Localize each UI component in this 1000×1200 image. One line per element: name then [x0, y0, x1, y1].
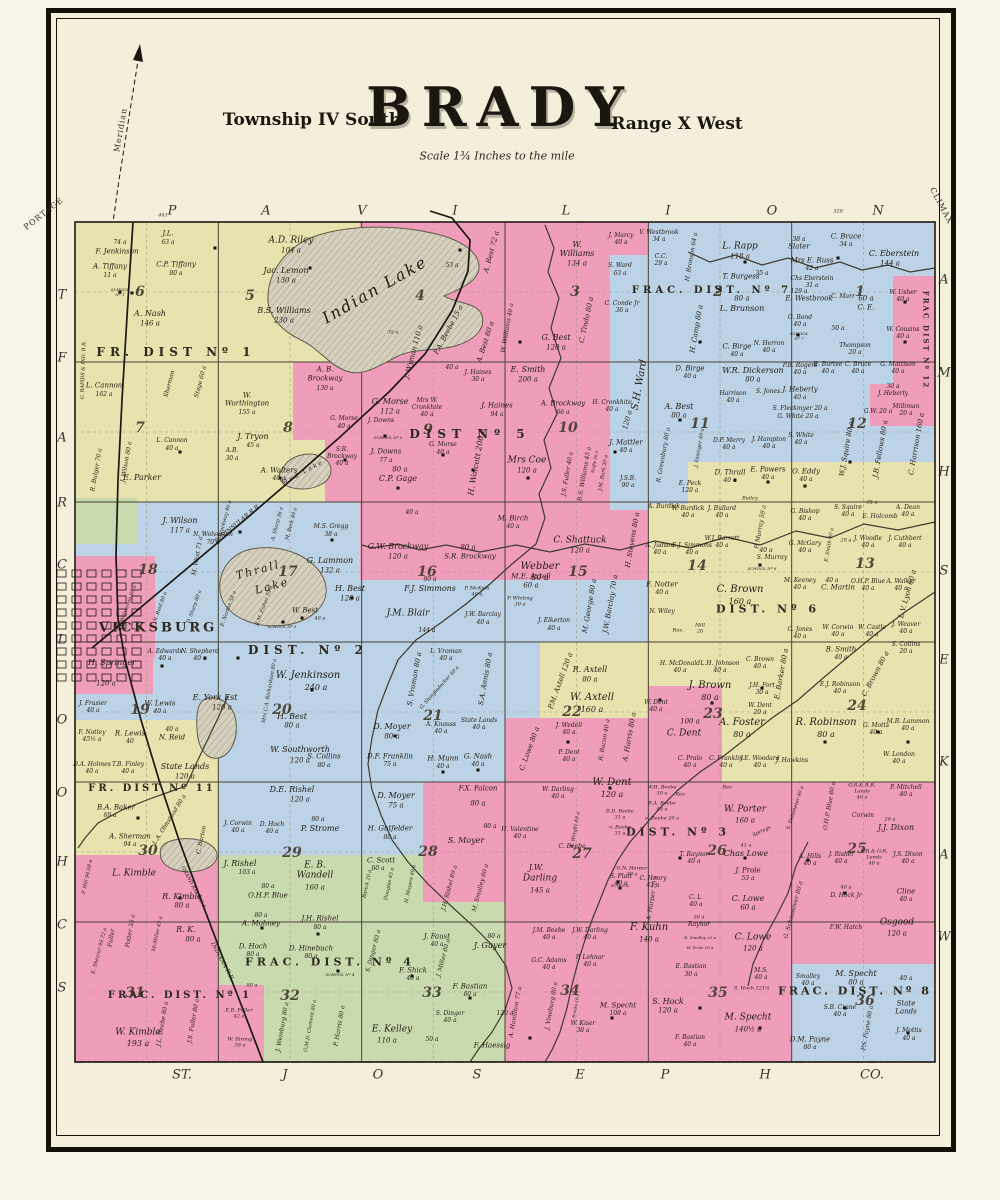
parcel-label: D. Hinebuch — [289, 946, 333, 953]
parcel-label: 38 a — [792, 237, 805, 243]
parcel-label: J. Mottis — [896, 1028, 921, 1034]
parcel-label: 40 a — [899, 897, 912, 903]
parcel-label: N. Reid — [159, 735, 185, 742]
parcel-label: 120 a — [212, 705, 232, 712]
parcel-label: P. Harris 80 a — [333, 1005, 346, 1047]
parcel-label: W. Axtell — [570, 693, 614, 703]
parcel-label: 40 a — [86, 708, 99, 714]
parcel-label: W. Best — [292, 608, 318, 615]
parcel-label: 80 a — [174, 903, 189, 910]
section-number: 23 — [703, 707, 722, 721]
parcel-label: 80 a — [392, 467, 407, 474]
parcel-label: 112 a — [380, 409, 400, 416]
parcel-label: E. Smith 40 a — [825, 528, 836, 563]
parcel-label: R. Axtell — [573, 666, 607, 674]
parcel-label: 53 a — [445, 263, 458, 269]
parcel-label: A. Foster — [719, 718, 765, 728]
parcel-label: 66 a — [556, 410, 569, 416]
parcel-label: 117 a — [170, 528, 190, 535]
parcel-label: 60 a — [371, 866, 384, 872]
parcel-label: J.W. Barclay — [465, 612, 501, 618]
parcel-label: E. Westbrook — [785, 296, 832, 303]
parcel-label: 40 a — [899, 629, 912, 635]
parcel-label: F. Bastian — [453, 984, 488, 991]
parcel-label: 40 a — [761, 475, 774, 481]
parcel-label: D.F. Franklin — [367, 754, 413, 761]
parcel-label: P. Strome — [301, 825, 340, 833]
parcel-label: 40 a — [753, 763, 766, 769]
parcel-label: Webber — [521, 562, 560, 572]
parcel-label: 69 a — [103, 813, 116, 819]
parcel-label: 60 a — [463, 992, 476, 998]
parcel-label: 40 a — [821, 369, 834, 375]
parcel-label: 77 a — [379, 458, 392, 464]
parcel-label: G.W. Brockway — [368, 543, 429, 551]
parcel-label: 40 a — [753, 664, 766, 670]
parcel-label: 80 a — [745, 377, 760, 384]
parcel-label: 40 a — [614, 240, 627, 246]
section-number: 16 — [417, 565, 436, 579]
parcel-label: Douglas 45 a — [384, 867, 396, 900]
parcel-label: 130 a — [276, 278, 296, 285]
parcel-label: C. Eberstein — [869, 250, 919, 258]
parcel-label: INDIANA R.R. — [209, 941, 235, 982]
parcel-label: 42 a — [234, 1015, 245, 1020]
parcel-label: N. Reid 80 a — [153, 591, 168, 622]
parcel-label: 160 a — [305, 885, 325, 892]
section-number: 35 — [708, 986, 727, 1000]
parcel-label: J. Weinburg 80 a — [276, 1002, 291, 1052]
parcel-label: G. White 20 a — [777, 414, 818, 420]
parcel-label: R. Greenbury 80 a — [656, 427, 672, 483]
parcel-label: 120 a — [340, 596, 360, 603]
edge-letter-south: S — [473, 1069, 482, 1082]
section-number: 15 — [568, 565, 587, 579]
lake-name: Indian Lake — [320, 254, 430, 327]
parcel-label: L. Brunson — [720, 305, 764, 313]
parcel-label: 144 a — [419, 628, 436, 634]
parcel-label: 40 a — [723, 478, 736, 484]
district-label: FR. DIST Nº 11 — [88, 784, 215, 794]
parcel-label: A. Sharp 36 a — [271, 507, 285, 542]
parcel-label: C. Martin — [821, 585, 855, 592]
parcel-label: 40 a — [896, 334, 909, 340]
parcel-label: F. Jenkinson — [96, 249, 139, 256]
parcel-label: 40 a — [869, 730, 882, 736]
parcel-label: A. Nash — [134, 310, 166, 318]
parcel-label: 103 a — [239, 870, 256, 876]
parcel-label: L.V. Lyon 60 a — [898, 569, 918, 619]
parcel-label: 50 a — [831, 326, 844, 332]
parcel-label: J.L. — [162, 231, 173, 238]
parcel-label: H. Gutfelder — [368, 826, 412, 833]
parcel-label: Nº 7 — [794, 337, 803, 341]
parcel-label: J. Brown — [689, 681, 732, 691]
parcel-label: 80 a — [313, 925, 326, 931]
parcel-label: J. Prole — [735, 868, 760, 875]
parcel-label: 30 a — [225, 456, 238, 462]
parcel-label: 40 a — [803, 861, 816, 867]
parcel-label: State Lands — [161, 763, 209, 771]
section-number: 22 — [562, 705, 581, 719]
parcel-label: o. Beebe 20 a — [645, 817, 679, 822]
parcel-label: 40 a — [722, 445, 735, 451]
parcel-label: 140 a — [639, 937, 659, 944]
parcel-label: 40 a — [506, 524, 519, 530]
title-range: Range X West — [611, 114, 743, 134]
parcel-label: 80 a — [470, 801, 485, 808]
parcel-label: D. Hock Jr — [830, 893, 861, 899]
parcel-label: 40 a — [683, 374, 696, 380]
parcel-label: C. Scott — [367, 858, 395, 865]
plat-map-page: { "title":{"name":"BRADY","township":"To… — [0, 0, 1000, 1200]
section-number: 17 — [278, 565, 297, 579]
parcel-label: J. Tryon — [237, 433, 268, 441]
parcel-label: S. Vroman 80 a — [407, 652, 423, 707]
section-number: 7 — [135, 421, 145, 435]
parcel-label: B.S. Williams 45 a — [577, 446, 592, 501]
edge-letter-south: ST. — [172, 1069, 192, 1082]
parcel-label: Bailey — [742, 497, 758, 502]
parcel-label: W. — [572, 241, 581, 249]
edge-letter-west: T — [58, 289, 67, 302]
edge-letter-east: H — [938, 466, 949, 479]
edge-letter-north: I — [665, 205, 670, 218]
district-label: DIST. Nº 6 — [716, 604, 820, 615]
parcel-label: M. Smalley 80 a — [472, 863, 491, 912]
parcel-label: J.W. Barclay 70 a — [602, 574, 619, 634]
parcel-label: L. Cannon — [156, 438, 187, 444]
parcel-label: J. Guyer — [474, 942, 506, 950]
parcel-label: C. Bruce — [831, 234, 862, 241]
page-title: BRADY — [366, 75, 634, 139]
parcel-label: 40 a — [898, 543, 911, 549]
section-number: 3 — [570, 285, 580, 299]
parcel-label: 42 a — [805, 266, 818, 272]
parcel-label: W. Kimble — [115, 1029, 161, 1038]
parcel-label: 40 a — [841, 886, 852, 891]
parcel-label: F. Haessig — [474, 1043, 511, 1050]
parcel-label: 40 a — [834, 859, 847, 865]
parcel-label: Chas Lowe — [724, 850, 768, 858]
parcel-label: 120 a — [96, 681, 116, 688]
parcel-label: 34 a — [839, 242, 852, 248]
parcel-label: 441 — [158, 214, 168, 219]
district-label: FRAC DIST Nº 12 — [923, 291, 930, 389]
parcel-label: M. Specht — [725, 1014, 772, 1023]
parcel-label: Res — [722, 786, 731, 791]
parcel-label: 80 a — [487, 934, 500, 940]
parcel-label: 40 a — [471, 762, 484, 768]
parcel-label: 48 a — [315, 617, 326, 622]
parcel-label: A. Best 72 a — [483, 230, 501, 273]
parcel-label: H. Camp 80 a — [689, 304, 704, 353]
parcel-label: F.W. Hatch — [830, 925, 863, 931]
parcel-label: 40 a — [833, 689, 846, 695]
parcel-label: S. Hock — [652, 998, 683, 1006]
section-number: 32 — [280, 989, 299, 1003]
parcel-label: 108 a — [610, 1011, 627, 1017]
parcel-label: 80 a — [817, 731, 835, 739]
parcel-label: C. Lowe — [735, 934, 772, 943]
parcel-label: 41 a — [741, 844, 752, 849]
parcel-label: E. Barker 80 a — [774, 648, 790, 700]
parcel-label: H. Munn — [427, 756, 458, 763]
parcel-label: 120 a — [546, 345, 566, 352]
edge-letter-west: A — [57, 432, 66, 445]
parcel-label: 40 a — [153, 709, 166, 715]
parcel-label: 36 a — [615, 308, 628, 314]
parcel-label: C. Brown — [717, 585, 764, 595]
parcel-label: SCHOOL Nº 4 — [326, 973, 355, 977]
parcel-label: B.S. Williams — [257, 307, 310, 315]
parcel-label: N. Wiley — [649, 609, 675, 615]
parcel-label: 40 a — [562, 757, 575, 763]
parcel-label: L.A. Olmstead 80 a — [152, 794, 188, 846]
parcel-label: 80 a — [317, 763, 330, 769]
parcel-label: 40 a — [265, 829, 278, 835]
parcel-label: 38 a — [324, 532, 337, 538]
parcel-label: J. Mattler — [609, 440, 642, 447]
parcel-label: 40 a — [894, 586, 907, 592]
parcel-label: F. Shick — [399, 968, 427, 975]
parcel-label: Jac. Lemon — [263, 267, 308, 275]
parcel-label: McMiller 45 a — [152, 916, 164, 952]
parcel-label: 11 a — [103, 273, 116, 279]
parcel-label: S. Murray — [757, 555, 787, 561]
parcel-label: 40 a — [655, 590, 668, 596]
parcel-label: Sherman — [164, 370, 177, 398]
parcel-label: E. Smith — [511, 366, 546, 374]
parcel-label: 118 a — [730, 254, 750, 261]
parcel-label: 40 a — [861, 586, 874, 592]
parcel-label: 120 a — [601, 791, 624, 799]
edge-letter-east: A — [939, 849, 948, 862]
parcel-label: 40 a — [833, 1012, 846, 1018]
edge-letter-west: L — [58, 634, 67, 647]
parcel-label: 40 a — [542, 965, 555, 971]
parcel-label: H. Springer — [88, 659, 136, 667]
parcel-label: 134 a — [567, 261, 587, 268]
parcel-label: 40 a — [547, 626, 560, 632]
parcel-label: Stage 60 a — [194, 366, 208, 399]
parcel-label: 40 a — [583, 935, 596, 941]
parcel-label: D. Hoch — [239, 944, 268, 951]
parcel-label: J.W. — [529, 864, 544, 872]
section-number: 13 — [855, 557, 874, 571]
parcel-label: 80 a — [284, 723, 299, 730]
edge-letter-east: E — [939, 654, 949, 667]
parcel-label: 155 a — [239, 410, 256, 416]
parcel-label: 40 a — [899, 976, 912, 982]
parcel-label: M. Specht — [600, 1003, 636, 1010]
edge-letter-south: P — [661, 1069, 670, 1082]
parcel-label: R. Lewis — [115, 731, 145, 738]
parcel-label: F. Kuhn — [630, 923, 668, 933]
parcel-label: 240 a — [305, 684, 328, 692]
parcel-label: 40 a — [158, 656, 171, 662]
parcel-label: E. B. — [304, 862, 326, 871]
parcel-label: 120 a — [570, 548, 590, 555]
parcel-label: J. Rishel — [224, 860, 257, 868]
district-label: DIST. Nº 2 — [248, 644, 368, 656]
parcel-label: 40 a — [799, 477, 812, 483]
parcel-label: M. Beck 40 a — [285, 507, 298, 540]
district-label: DIST Nº 5 — [409, 428, 530, 440]
parcel-label: 200 a — [518, 377, 538, 384]
edge-letter-east: S — [940, 565, 949, 578]
parcel-label: J. Hawkins — [776, 758, 808, 764]
parcel-label: A. Best — [665, 403, 694, 411]
parcel-label: 40 a — [513, 834, 526, 840]
parcel-label: Res. — [673, 629, 684, 634]
parcel-label: J. Vineburg 80 a — [545, 981, 559, 1030]
parcel-label: W. — [243, 393, 251, 400]
parcel-label: A. B. — [317, 367, 334, 374]
parcel-label: 40 a — [869, 862, 880, 867]
parcel-label: 40 a — [472, 725, 485, 731]
parcel-label: D. Birge — [675, 366, 704, 373]
parcel-label: 80 a — [311, 817, 324, 823]
parcel-label: 35 a — [867, 501, 878, 506]
parcel-label: O. Eddy — [792, 469, 820, 476]
parcel-label: G. Nash — [464, 754, 492, 761]
parcel-label: 80 a — [671, 413, 686, 420]
parcel-label: E. Bastian — [675, 964, 706, 970]
parcel-label: 130 a — [317, 386, 334, 392]
parcel-label: 40 a — [825, 578, 838, 584]
parcel-label: J. Downs — [368, 418, 394, 424]
parcel-label: 129 a — [791, 289, 808, 295]
edge-letter-east: K — [939, 756, 949, 769]
parcel-label: G. Shingledecker 40 a — [419, 665, 460, 710]
parcel-label: E. Powers — [750, 467, 785, 474]
parcel-label: 80 a — [261, 884, 274, 890]
district-label: FR. DIST Nº 1 — [96, 346, 255, 358]
parcel-label: 38 a — [235, 1044, 246, 1049]
edge-letter-west: F — [57, 352, 66, 365]
parcel-label: 40 a — [713, 668, 726, 674]
parcel-label: Brockway — [308, 376, 343, 383]
parcel-label: 40 a — [683, 763, 696, 769]
parcel-label: 144 a — [880, 261, 900, 268]
district-label: FRAC. DIST. Nº 8 — [778, 986, 932, 997]
parcel-label: 80 a — [383, 835, 396, 841]
parcel-label: 39 a — [627, 873, 638, 878]
parcel-label: 40 a — [562, 730, 575, 736]
parcel-label: 320 — [833, 210, 843, 215]
parcel-label: D. Moyer — [377, 792, 414, 800]
parcel-label: J.H. Rishel — [301, 916, 338, 923]
parcel-label: 40 — [126, 739, 134, 745]
edge-letter-south: CO. — [860, 1069, 884, 1082]
parcel-label: 30 a — [515, 603, 526, 608]
parcel-label: R. K. — [176, 926, 196, 934]
parcel-label: 30 a — [694, 916, 705, 921]
parcel-label: G. Schoonover 80 a — [783, 881, 804, 940]
parcel-label: 60 a — [740, 905, 755, 912]
parcel-label: 80 a — [733, 731, 751, 739]
parcel-label: C.P. Gage — [379, 475, 417, 483]
parcel-label: M. Birch — [498, 516, 529, 523]
parcel-label: 40 a — [899, 792, 912, 798]
parcel-label: 40 a — [476, 620, 489, 626]
parcel-label: C. Dent — [667, 730, 701, 739]
edge-letter-east: A — [939, 274, 948, 287]
parcel-label: F.J. Simmons — [404, 585, 456, 593]
parcel-label: Cline — [897, 889, 915, 896]
parcel-label: Noffle 20 a — [591, 451, 599, 474]
section-number: 4 — [415, 289, 425, 303]
edge-letter-west: H — [56, 856, 67, 869]
parcel-label: 63 a — [613, 271, 626, 277]
parcel-label: 120 a — [517, 468, 537, 475]
parcel-label: Fuller — [107, 928, 116, 947]
parcel-label: 53 a — [741, 876, 754, 882]
parcel-label: 40 a — [165, 727, 178, 733]
section-number: 14 — [687, 559, 706, 573]
parcel-label: W. Porter — [724, 806, 766, 815]
parcel-label: 40 a — [762, 444, 775, 450]
parcel-label: C. Lowe 80 a — [519, 726, 541, 772]
parcel-label: J.J. Dixon — [878, 824, 914, 832]
parcel-label: A. Sherman — [109, 834, 151, 841]
parcel-label: 45½ a — [83, 737, 102, 743]
corner-label: PORTAGE — [23, 196, 66, 232]
parcel-label: 160 a — [735, 818, 755, 825]
parcel-label: J.H. Rishel 80 a — [441, 865, 459, 912]
parcel-label: 40 a — [619, 448, 632, 454]
parcel-label: 40 a — [902, 1036, 915, 1042]
parcel-label: C. Harrison 160 a — [908, 412, 926, 475]
parcel-label: 40 a — [436, 764, 449, 770]
parcel-label: 40 a — [653, 550, 666, 556]
section-number: 21 — [423, 709, 442, 723]
parcel-label: 40 a — [434, 729, 447, 735]
parcel-label: State — [897, 1001, 916, 1008]
parcel-label: 80 a — [582, 677, 597, 684]
parcel-label: W. Williams 40 a — [501, 303, 516, 353]
parcel-label: O.H.P. Blue — [248, 893, 288, 900]
parcel-label: 80 a — [734, 296, 749, 303]
parcel-label: 40 a — [542, 935, 555, 941]
parcel-label: 30 a — [684, 972, 697, 978]
parcel-label: 40 a — [689, 902, 702, 908]
parcel-label: E. Norton 58 a — [220, 591, 237, 628]
parcel-label: 80 a — [254, 913, 267, 919]
parcel-label: D.M. Payne — [790, 1037, 830, 1044]
parcel-label: W. Jenkinson — [276, 671, 341, 681]
section-number: 25 — [847, 842, 866, 856]
parcel-label: 80 a — [803, 1045, 816, 1051]
parcel-label: 120 a — [658, 1008, 678, 1015]
parcel-label: J. Haines — [481, 403, 512, 410]
parcel-label: 29 a — [654, 261, 667, 267]
parcel-label: 50 a — [425, 1037, 438, 1043]
parcel-label: 94 a — [490, 412, 503, 418]
parcel-label: 40 a — [831, 632, 844, 638]
parcel-label: A. Harris 80 a — [622, 712, 638, 762]
parcel-label: 100 a — [680, 719, 700, 726]
parcel-label: J. Elkerton — [538, 618, 570, 624]
parcel-label: 120 a — [290, 797, 310, 804]
parcel-label: 20 — [697, 630, 703, 635]
parcel-label: Lands — [895, 1009, 916, 1016]
parcel-label: SCHOOL Nº 3 — [268, 625, 297, 629]
parcel-label: 40 a — [85, 769, 98, 775]
parcel-label: 120 a — [743, 946, 763, 953]
parcel-label: 40 a — [681, 513, 694, 519]
